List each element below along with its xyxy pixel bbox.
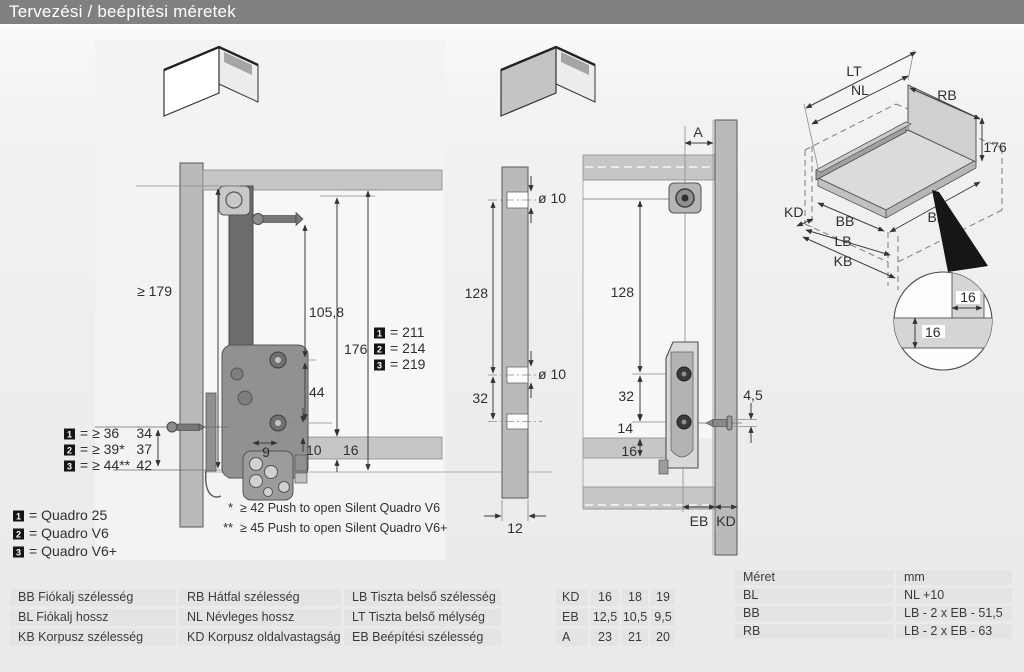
abbrev-cell: RB Hátfal szélesség [179,589,341,606]
label-eb: EB [690,513,709,529]
legend-badge: 2 [16,530,21,540]
formula-label: RB [735,624,893,639]
formula-header: Méret [735,570,893,585]
footnote-mark: * [228,501,233,515]
legend-badge: 2 [377,345,382,355]
value-row-label: EB [556,609,588,626]
value-cell: 23 [591,629,619,646]
dim-nl: NL [851,82,869,98]
formula-label: BL [735,588,893,603]
catalog-page: { "title": "Tervezési / beépítési mérete… [0,0,1024,672]
value-cell: 9,5 [651,609,675,626]
value-row-label: KD [556,589,588,606]
thickness-values-table: KD 16 18 19 EB 12,5 10,5 9,5 A 23 21 20 [556,589,675,646]
legend-badge: 1 [16,512,21,522]
value-cell: 19 [651,589,675,606]
rear-connector [669,183,701,213]
abbrev-cell: KB Korpusz szélesség [10,629,176,646]
dim-105-8: 105,8 [309,304,344,320]
footnote-text: ≥ 45 Push to open Silent Quadro V6+ [240,521,447,535]
dim-rb: RB [937,87,956,103]
bottom-rail [583,487,715,509]
dim-min-179: ≥ 179 [137,283,172,299]
formula-value: LB - 2 x EB - 51,5 [896,606,1012,621]
abbrev-cell: BL Fiókalj hossz [10,609,176,626]
legend-badge: 1 [67,430,72,440]
legend-value: 42 [136,457,152,473]
dim-16-bottom: 16 [343,442,359,458]
legend-text: = ≥ 44** [80,457,131,473]
legend-badge: 1 [377,329,382,339]
footnote-mark: ** [223,521,233,535]
detail-dim-16-thickness: 16 [925,324,941,340]
front-gap-legend: 1 = ≥ 36 34 2 = ≥ 39* 37 3 = ≥ 44** 42 [64,425,152,473]
abbrev-cell: NL Névleges hossz [179,609,341,626]
dim-16: 16 [621,443,637,459]
product-name: = Quadro V6 [29,525,109,541]
value-cell: 10,5 [622,609,648,626]
dim-128: 128 [611,284,635,300]
cabinet-side-view-drawing: A 128 32 14 16 4,5 [583,120,763,555]
dim-44: 44 [309,384,325,400]
legend-text: = 214 [390,340,426,356]
legend-badge: 2 [67,446,72,456]
dim-12: 12 [507,520,523,536]
formula-header: mm [896,570,1012,585]
value-cell: 21 [622,629,648,646]
legend-badge: 3 [67,462,72,472]
dim-bb: BB [836,213,855,229]
dim-dia-10-mid: ø 10 [538,366,566,382]
dim-32: 32 [618,388,634,404]
footnote-text: ≥ 42 Push to open Silent Quadro V6 [240,501,440,515]
product-name: = Quadro 25 [29,507,107,523]
product-legend: 1 = Quadro 25 2 = Quadro V6 3 = Quadro V… [13,507,117,559]
dim-a: A [693,124,703,140]
legend-text: = 211 [390,324,425,340]
abbrev-cell: EB Beépítési szélesség [344,629,501,646]
formula-value: LB - 2 x EB - 63 [896,624,1012,639]
formula-table: Méret mm BL NL +10 BB LB - 2 x EB - 51,5… [735,570,1012,639]
abbrev-cell: KD Korpusz oldalvastagságok [179,629,341,646]
isometric-dimension-drawing: LT NL RB 176 KD BB LB KB BL [784,50,1007,290]
dim-lb: LB [834,233,851,249]
legend-badge: 3 [377,361,382,371]
drawer-icon-front [501,47,595,116]
dim-9: 9 [262,444,270,460]
dim-176: 176 [344,341,368,357]
dim-dia-10-top: ø 10 [538,190,566,206]
label-kd: KD [716,513,735,529]
value-row-label: A [556,629,588,646]
value-cell: 16 [591,589,619,606]
front-panel-section [502,167,528,498]
front-panel [180,163,203,527]
abbrev-cell: LT Tiszta belső mélység [344,609,501,626]
abbrev-cell: LB Tiszta belső szélesség [344,589,501,606]
cabinet-side-panel [715,120,737,555]
dim-kb: KB [834,253,853,269]
height-legend: 1 = 211 2 = 214 3 = 219 [374,324,426,372]
abbreviation-table: BB Fiókalj szélesség RB Hátfal szélesség… [10,589,501,646]
formula-value: NL +10 [896,588,1012,603]
detail-callout [932,190,988,272]
dim-176-iso: 176 [983,139,1007,155]
value-cell: 20 [651,629,675,646]
panel-joint-detail: 16 16 [890,268,996,370]
detail-dim-16-width: 16 [960,289,976,305]
dim-kd-iso: KD [784,204,803,220]
dim-4-5: 4,5 [743,387,763,403]
legend-value: 34 [136,425,152,441]
dim-14: 14 [617,420,633,436]
value-cell: 12,5 [591,609,619,626]
drilling-pattern-drawing: 128 32 ø 10 ø 10 12 [465,47,595,536]
legend-text: = ≥ 39* [80,441,125,457]
formula-label: BB [735,606,893,621]
legend-text: = 219 [390,356,426,372]
legend-text: = ≥ 36 [80,425,119,441]
dim-lt: LT [846,63,862,79]
product-name: = Quadro V6+ [29,543,117,559]
dim-32: 32 [472,390,488,406]
front-connector [219,186,250,215]
dim-10: 10 [306,442,322,458]
abbrev-cell: BB Fiókalj szélesség [10,589,176,606]
value-cell: 18 [622,589,648,606]
legend-value: 37 [136,441,152,457]
legend-badge: 3 [16,548,21,558]
dim-128: 128 [465,285,489,301]
